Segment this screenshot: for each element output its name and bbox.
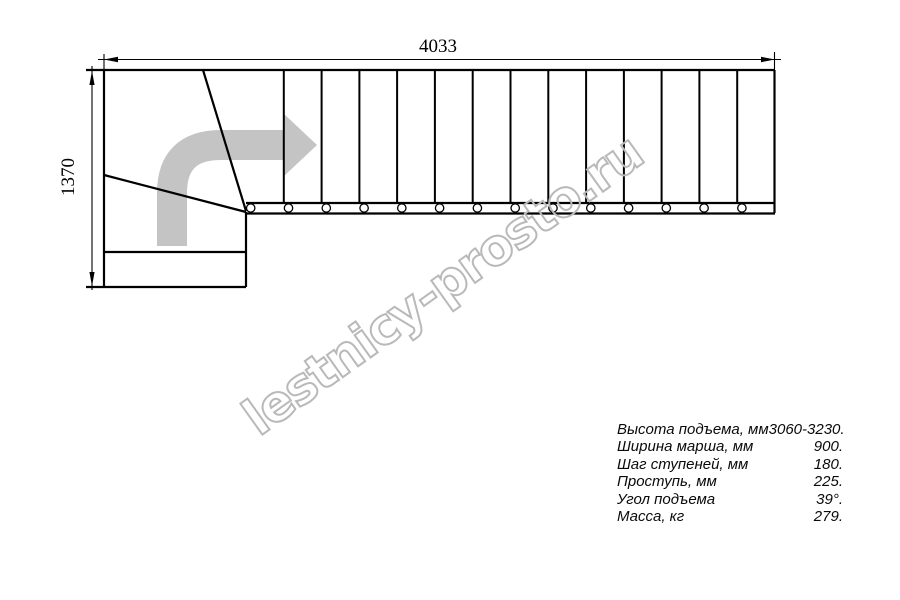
dim-height-value: 1370 [58,158,79,196]
spec-value: 3060-3230. [769,421,845,438]
direction-arrow-shaft [172,145,283,246]
spec-row-rise-height: Высота подъема, мм 3060-3230. [617,421,843,438]
spec-row-mass: Масса, кг 279. [617,508,843,525]
bolt-circle [247,204,255,212]
bolt-circle [473,204,481,212]
dimension-width: 4033 [98,36,781,70]
spec-label: Ширина марша, мм [617,438,814,455]
dim-arrow-left-icon [104,57,118,62]
spec-row-step-pitch: Шаг ступеней, мм 180. [617,456,843,473]
dim-width-value: 4033 [419,36,457,57]
dim-arrow-right-icon [761,57,775,62]
stair-outline [86,70,775,287]
bolt-circle [624,204,632,212]
spec-value: 900. [814,438,843,455]
watermark-text: lestnicy-prosto.ru [232,123,653,446]
bolt-circle [700,204,708,212]
spec-label: Угол подъема [617,491,816,508]
spec-value: 39°. [816,491,843,508]
bolt-circle [398,204,406,212]
tread-lines [284,70,737,203]
dim-arrow-top-icon [89,71,94,85]
dim-arrow-bottom-icon [89,272,94,286]
spec-label: Высота подъема, мм [617,421,769,438]
bolt-circle [284,204,292,212]
direction-arrow-head [283,113,317,177]
dimension-height: 1370 [58,66,95,290]
spec-row-flight-width: Ширина марша, мм 900. [617,438,843,455]
spec-value: 279. [814,508,843,525]
specs-table: Высота подъема, мм 3060-3230. Ширина мар… [617,421,843,525]
bolt-circle [322,204,330,212]
stair-plan-canvas: 4033 1370 lestnicy-prosto.ru Высота подъ… [0,0,900,600]
spec-label: Шаг ступеней, мм [617,456,814,473]
bolt-circle [662,204,670,212]
spec-label: Проступь, мм [617,473,814,490]
spec-label: Масса, кг [617,508,814,525]
bolt-circle [738,204,746,212]
bolt-circle [435,204,443,212]
direction-arrow [172,113,317,246]
spec-row-tread: Проступь, мм 225. [617,473,843,490]
spec-row-rise-angle: Угол подъема 39°. [617,491,843,508]
bolt-circle [360,204,368,212]
spec-value: 180. [814,456,843,473]
spec-value: 225. [814,473,843,490]
